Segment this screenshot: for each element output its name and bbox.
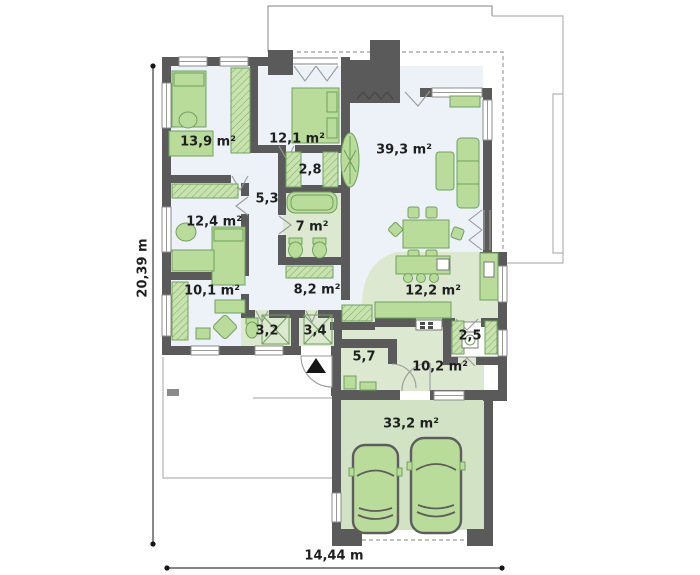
room-label-bedroom-1: 13,9 m²	[180, 136, 236, 149]
sofa	[457, 138, 479, 208]
car	[411, 438, 461, 533]
car-mirror	[349, 468, 354, 476]
dimension-label-bottom: 14,44 m	[304, 550, 363, 563]
car-mirror	[407, 462, 412, 470]
room-label-bedroom-2: 12,1 m²	[269, 133, 325, 146]
room-label-closet: 2,8	[298, 164, 321, 177]
wardrobe	[342, 305, 372, 321]
room-label-hall: 5,3	[255, 193, 278, 206]
coffee-table	[436, 152, 454, 190]
bench	[344, 376, 356, 389]
wardrobe	[286, 266, 333, 278]
bar-stool	[430, 274, 439, 283]
room-label-bedroom-3: 12,4 m²	[186, 216, 242, 229]
car-mirror	[460, 462, 465, 470]
room-label-kitchen: 12,2 m²	[405, 285, 461, 298]
floor-plan: 13,9 m² 12,1 m² 2,8 5,3 7 m² 39,3 m² 12,…	[0, 0, 700, 575]
room-label-corridor: 8,2 m²	[294, 284, 341, 297]
corridor-furniture	[286, 266, 333, 278]
room-label-living-room: 39,3 m²	[376, 144, 432, 157]
desk	[172, 250, 214, 271]
room-label-pantry: 2,5	[458, 330, 481, 343]
fireplace	[350, 60, 372, 103]
dimension-label-left: 20,39 m	[137, 238, 150, 297]
room-label-wc: 3,2	[255, 325, 278, 338]
room-label-bedroom-4: 10,1 m²	[184, 285, 240, 298]
chair	[426, 207, 437, 218]
room-label-garage: 33,2 m²	[383, 418, 439, 431]
room-label-bathroom-2: 3,4	[303, 325, 326, 338]
bar-stool	[417, 274, 426, 283]
floor-plan-drawing	[0, 0, 700, 575]
dining-table	[403, 220, 449, 248]
kitchen-counter	[375, 302, 451, 318]
room-label-utility: 10,2 m²	[412, 361, 468, 374]
car-mirror	[397, 468, 402, 476]
sink	[437, 259, 449, 270]
cabinet	[360, 382, 376, 390]
wardrobe	[323, 152, 338, 187]
chair	[179, 112, 197, 128]
bar-stool	[404, 274, 413, 283]
wardrobe	[172, 184, 238, 198]
chair	[408, 207, 419, 218]
sideboard	[450, 96, 480, 107]
side-table	[196, 328, 210, 339]
shelves	[485, 321, 497, 354]
room-label-vestibule: 5,7	[352, 351, 375, 364]
room-label-bathroom: 7 m²	[296, 221, 329, 234]
desk	[215, 300, 245, 313]
porch-pillar	[167, 389, 179, 396]
